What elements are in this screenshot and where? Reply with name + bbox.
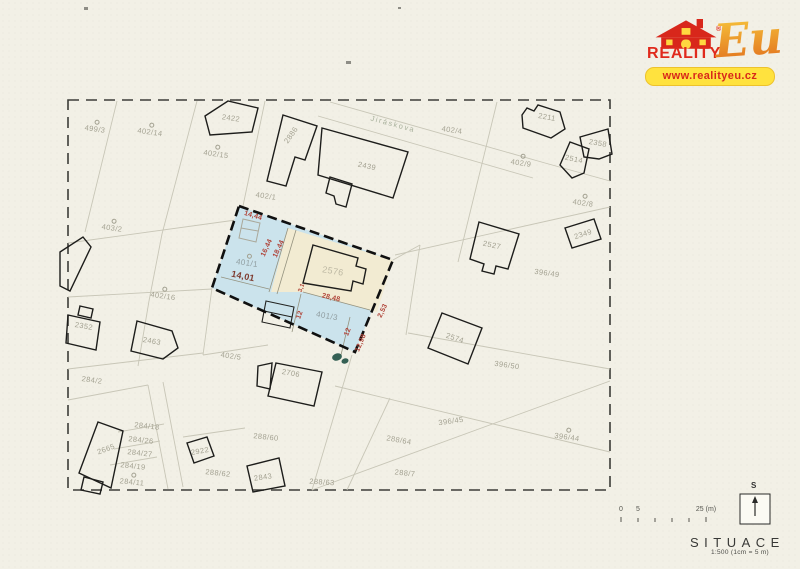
parcel-marker-icon xyxy=(583,193,589,199)
parcel-marker-icon xyxy=(112,218,118,224)
parcel-marker-icon xyxy=(521,153,527,159)
scan-speck xyxy=(398,7,401,9)
scan-speck xyxy=(84,7,88,10)
scale-bar-label: 5 xyxy=(636,506,640,513)
parcel-marker-icon xyxy=(215,144,221,150)
scale-bar-label: 0 xyxy=(619,506,623,513)
parcel-marker-icon xyxy=(95,119,101,125)
scale-bar xyxy=(621,517,706,522)
logo-url-text[interactable]: www.realityeu.cz xyxy=(645,67,775,86)
scan-speck xyxy=(346,61,351,64)
parcel-marker-icon xyxy=(566,427,572,433)
parcel-marker-icon xyxy=(162,286,168,292)
parcel-marker-icon xyxy=(131,472,136,477)
realityeu-logo: REALITY ® Eu www.realityeu.cz xyxy=(640,12,796,90)
handwritten-mark xyxy=(331,352,349,365)
parcel-label: 288/63 xyxy=(309,477,335,488)
logo-suffix-text: Eu xyxy=(712,14,784,65)
parcel-marker-icon xyxy=(149,122,155,128)
logo-brand-text: REALITY xyxy=(647,45,721,63)
north-arrow xyxy=(740,494,770,524)
scanned-site-plan-page: 499/3402/14402/15242228862439Jiráskova40… xyxy=(0,0,800,569)
scale-bar-label: 25 (m) xyxy=(696,506,716,513)
drawing-title: SITUACE xyxy=(690,535,785,550)
drawing-scale-note: 1:500 (1cm = 5 m) xyxy=(711,549,769,556)
north-label: S xyxy=(751,481,756,490)
parcel-marker-icon xyxy=(247,253,253,259)
